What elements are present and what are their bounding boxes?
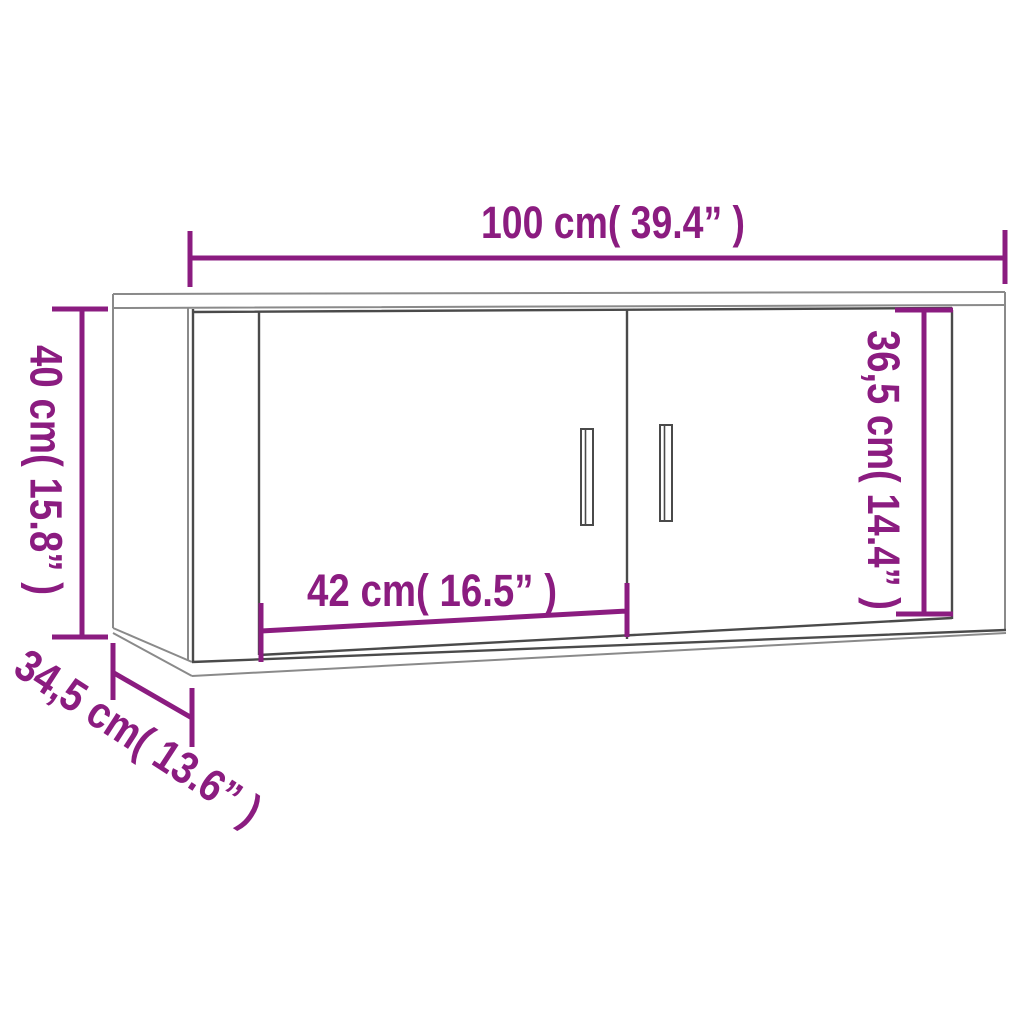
door-width-dimension-label: 42 cm( 16.5” ) xyxy=(307,565,557,616)
cabinet-bottom-panel-lower-edge xyxy=(192,633,1006,676)
left-door-handle xyxy=(581,429,593,525)
depth-dimension-label: 34,5 cm( 13.6” ) xyxy=(6,639,271,836)
dimension-overall-width: 100 cm( 39.4” ) xyxy=(190,197,1005,287)
dimension-diagram: 100 cm( 39.4” ) 40 cm( 15.8” ) 36,5 cm( … xyxy=(0,0,1024,1024)
width-dimension-label: 100 cm( 39.4” ) xyxy=(481,197,745,248)
cabinet-top-panel-edges xyxy=(113,292,1005,308)
cabinet-left-side-panel xyxy=(113,294,192,676)
right-door-handle xyxy=(660,425,672,521)
height-dimension-label: 40 cm( 15.8” ) xyxy=(21,345,72,595)
dimension-door-height: 36,5 cm( 14.4” ) xyxy=(858,310,953,614)
left-handle-body xyxy=(581,429,593,525)
dimension-overall-depth: 34,5 cm( 13.6” ) xyxy=(6,639,271,836)
right-handle-body xyxy=(660,425,672,521)
door-height-dimension-label: 36,5 cm( 14.4” ) xyxy=(858,330,909,610)
dimension-overall-height: 40 cm( 15.8” ) xyxy=(21,309,109,637)
